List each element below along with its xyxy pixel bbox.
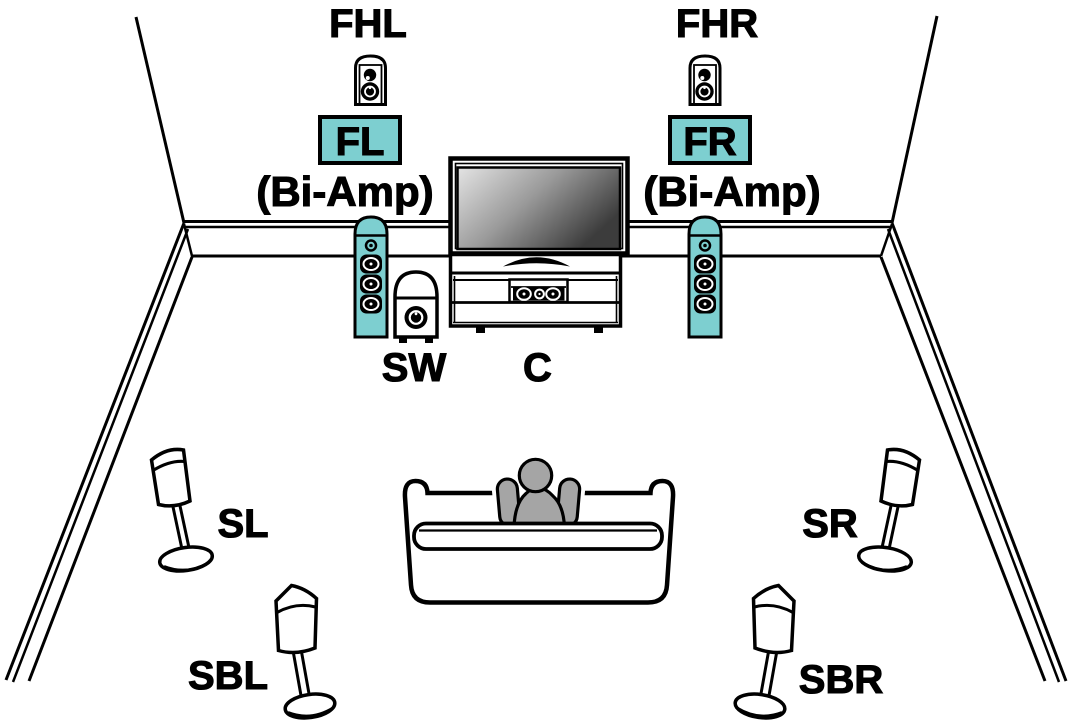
diagram-canvas: FHL FHR FL FR (Bi-Amp) (Bi-Amp) SW C SL … bbox=[0, 0, 1082, 724]
label-center: C bbox=[523, 346, 552, 390]
surround-left-speaker bbox=[152, 449, 214, 574]
left-baseboard-outer bbox=[6, 223, 184, 680]
speaker-layout-diagram: FHL FHR FL FR (Bi-Amp) (Bi-Amp) SW C SL … bbox=[0, 0, 1082, 724]
label-surround-left: SL bbox=[217, 502, 268, 546]
sofa-seat-cushion bbox=[414, 524, 662, 550]
front-height-right-speaker bbox=[690, 56, 720, 105]
surround-back-left-speaker bbox=[276, 586, 336, 721]
tv-screen bbox=[458, 168, 621, 250]
right-corner-joint bbox=[881, 224, 892, 256]
tv bbox=[451, 159, 628, 254]
front-height-left-speaker bbox=[356, 56, 386, 105]
right-baseboard-outer bbox=[892, 223, 1066, 681]
subwoofer-speaker bbox=[395, 272, 437, 343]
label-surround-back-left: SBL bbox=[188, 654, 268, 698]
label-front-height-right: FHR bbox=[676, 2, 758, 46]
label-front-height-left: FHL bbox=[329, 2, 407, 46]
label-bi-amp-right: (Bi-Amp) bbox=[643, 168, 820, 215]
label-surround-back-right: SBR bbox=[799, 658, 884, 702]
label-subwoofer: SW bbox=[382, 346, 447, 390]
left-corner-joint bbox=[184, 224, 192, 256]
surround-back-right-speaker bbox=[734, 586, 794, 721]
listener-person bbox=[497, 459, 581, 527]
label-bi-amp-left: (Bi-Amp) bbox=[256, 168, 433, 215]
center-speaker bbox=[510, 280, 568, 303]
front-right-tower-speaker bbox=[689, 217, 721, 337]
surround-right-speaker bbox=[857, 449, 919, 574]
right-wall-edge bbox=[892, 16, 937, 223]
left-wall-edge bbox=[136, 17, 184, 223]
label-front-left: FL bbox=[336, 120, 385, 164]
front-left-tower-speaker bbox=[355, 217, 387, 337]
person-head bbox=[519, 459, 551, 491]
label-surround-right: SR bbox=[802, 502, 858, 546]
label-front-right: FR bbox=[683, 120, 736, 164]
